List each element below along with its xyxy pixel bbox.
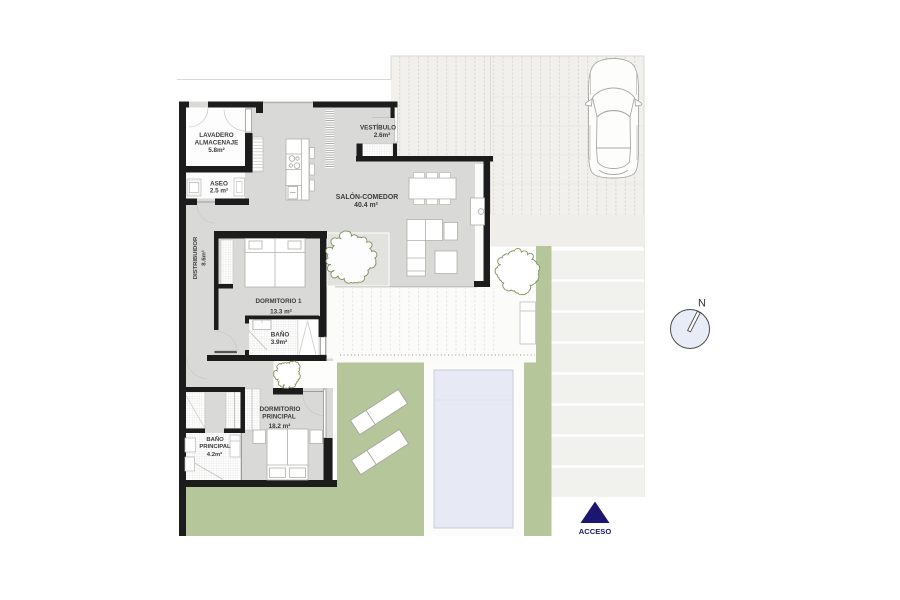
svg-text:SALÓN-COMEDOR: SALÓN-COMEDOR <box>336 192 398 201</box>
svg-text:40.4 m²: 40.4 m² <box>354 202 378 209</box>
svg-text:18.2 m²: 18.2 m² <box>269 423 291 430</box>
svg-text:BAÑO: BAÑO <box>206 436 224 443</box>
svg-text:ACCESO: ACCESO <box>579 527 612 536</box>
svg-text:ASEO: ASEO <box>210 180 228 187</box>
svg-text:LAVADERO: LAVADERO <box>199 132 234 139</box>
svg-text:2.5 m²: 2.5 m² <box>210 188 228 195</box>
svg-text:3.9m²: 3.9m² <box>271 339 287 346</box>
svg-text:2.6m²: 2.6m² <box>374 132 390 139</box>
svg-text:BAÑO: BAÑO <box>271 330 290 339</box>
svg-text:N: N <box>698 298 706 310</box>
svg-text:PRINCIPAL: PRINCIPAL <box>262 414 296 421</box>
svg-text:VESTÍBULO: VESTÍBULO <box>360 123 396 132</box>
svg-text:DORMITORIO 1: DORMITORIO 1 <box>255 298 302 305</box>
svg-text:13.3 m²: 13.3 m² <box>270 308 292 315</box>
svg-text:4.2m²: 4.2m² <box>207 451 222 458</box>
svg-text:8.6m²: 8.6m² <box>201 250 208 265</box>
svg-text:ALMACENAJE: ALMACENAJE <box>195 139 239 146</box>
svg-text:DORMITORIO: DORMITORIO <box>260 406 301 413</box>
svg-text:PRINCIPAL: PRINCIPAL <box>199 444 231 450</box>
svg-text:5.8m²: 5.8m² <box>208 147 224 154</box>
svg-text:DISTRIBUIDOR: DISTRIBUIDOR <box>193 236 199 279</box>
